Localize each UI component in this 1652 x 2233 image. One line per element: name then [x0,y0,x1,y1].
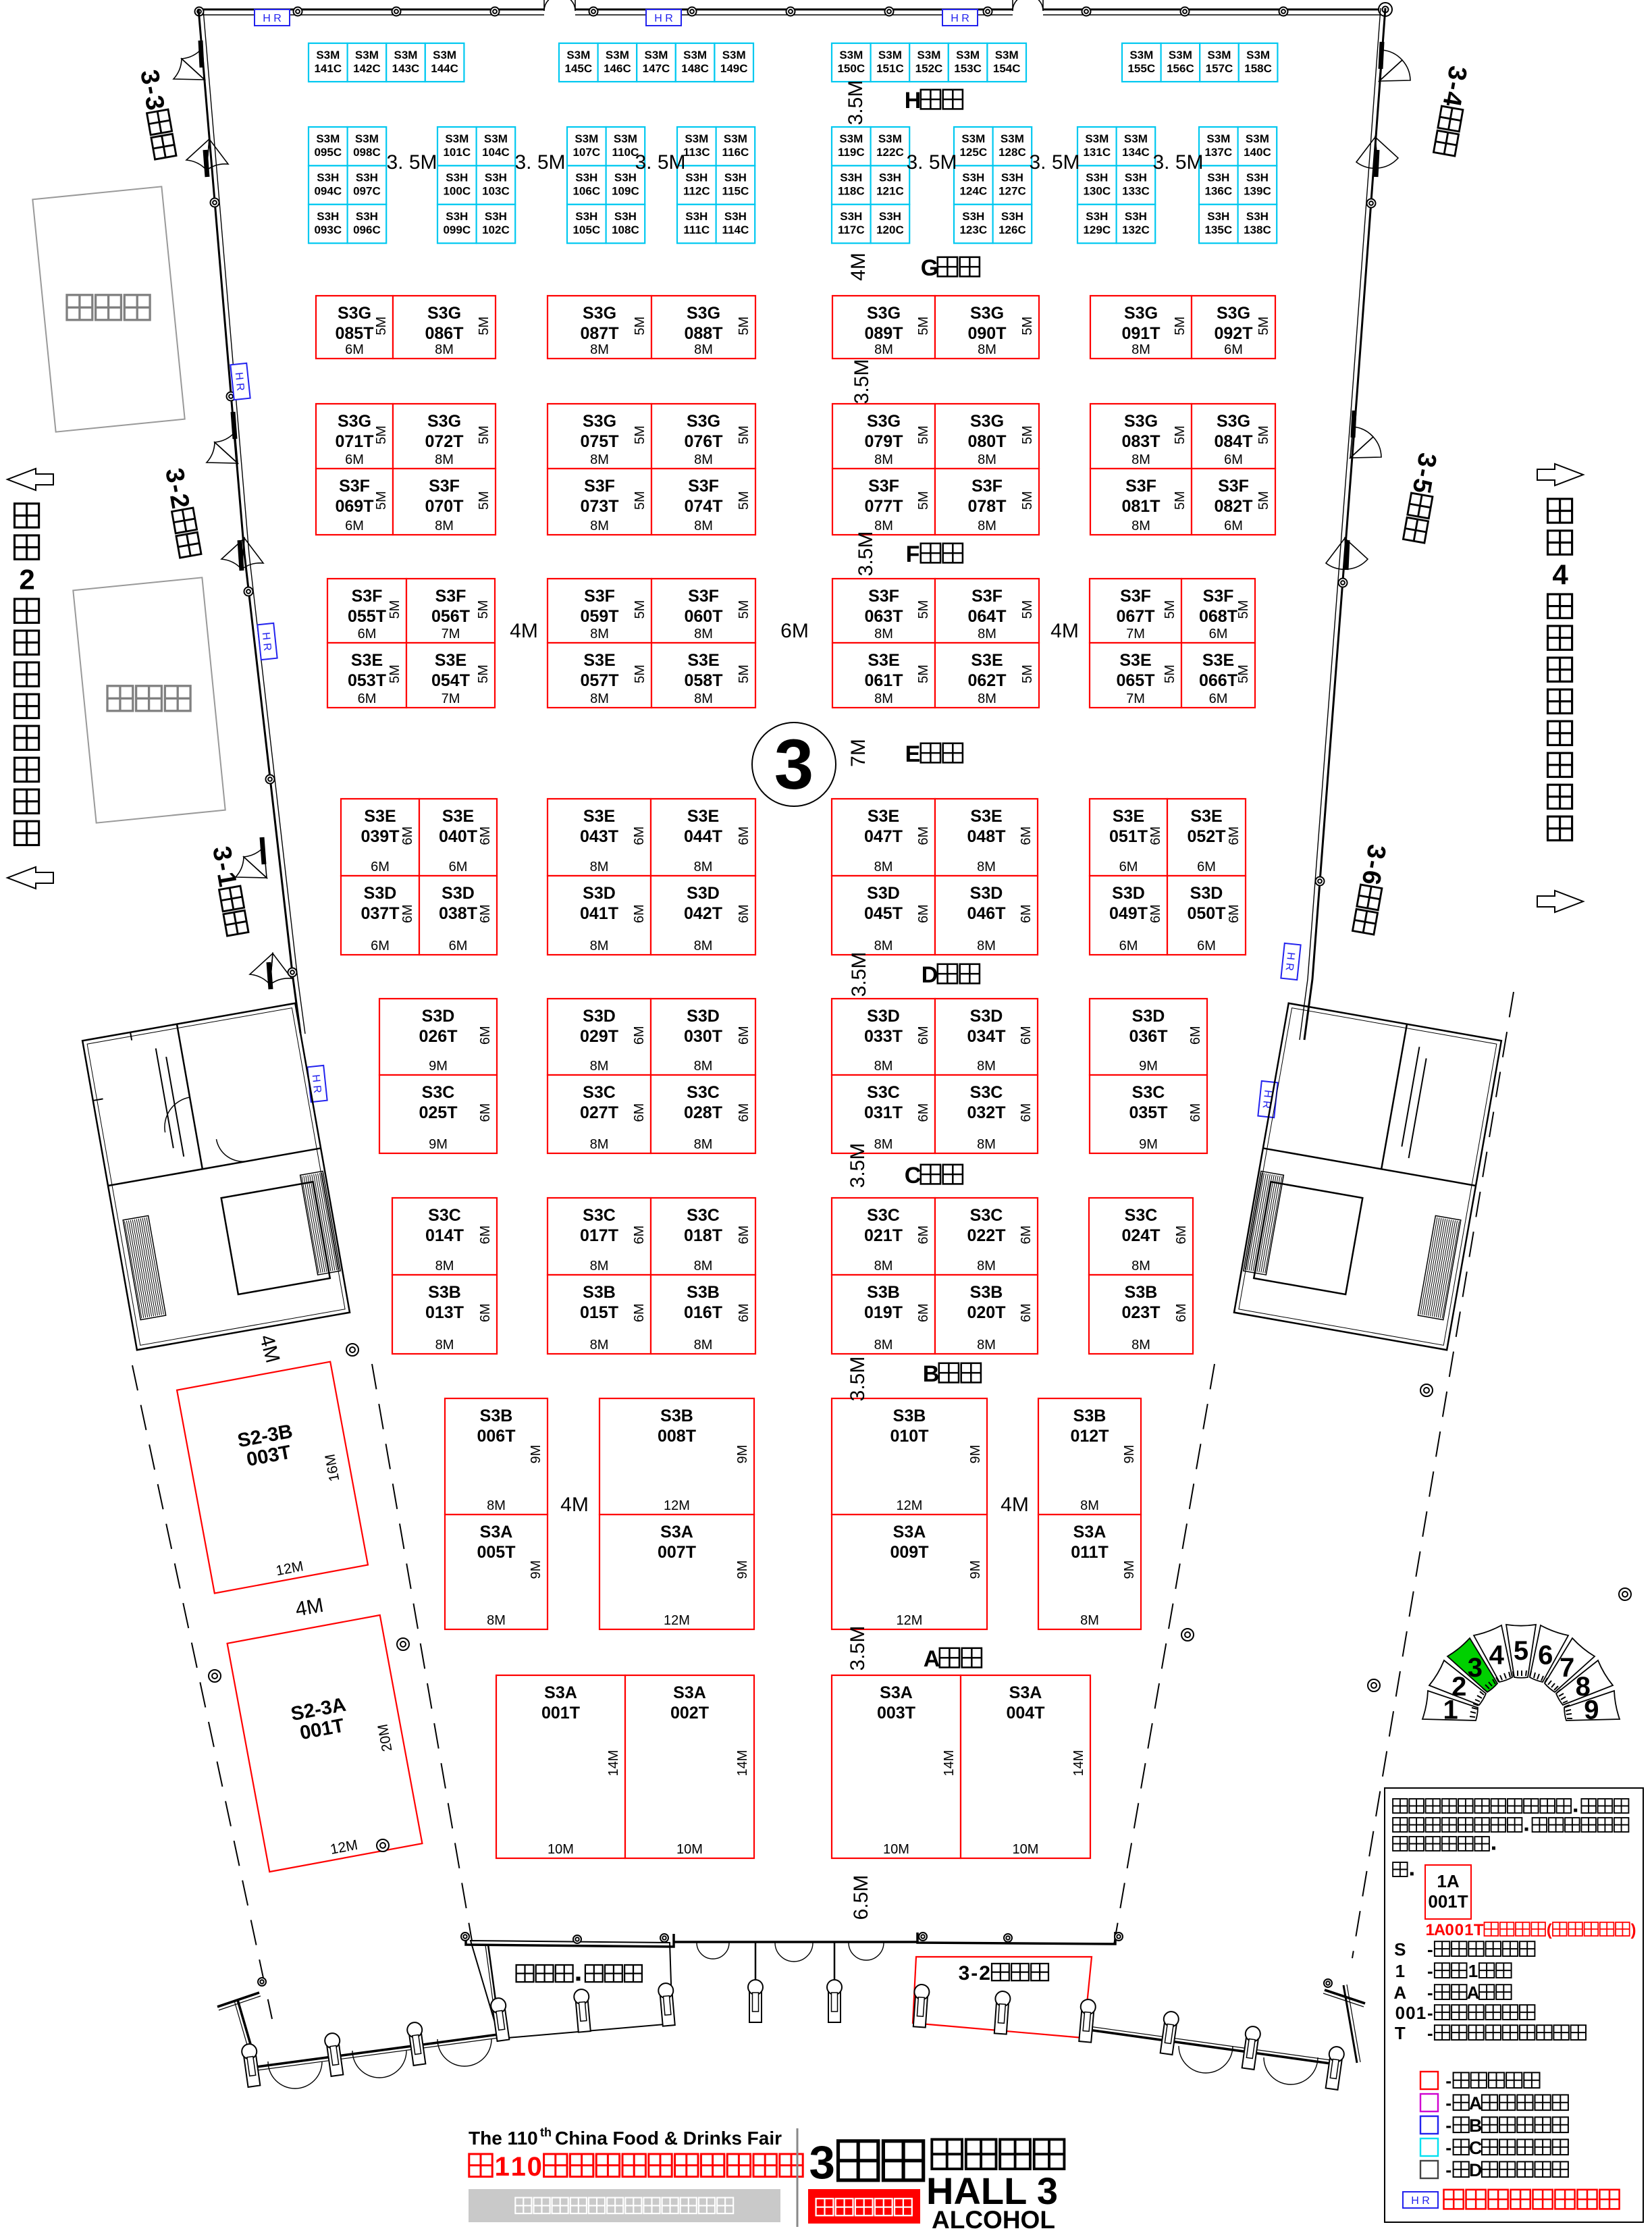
svg-text:6M: 6M [632,1026,647,1045]
svg-text:S3F: S3F [429,477,460,496]
svg-text:S3B: S3B [1125,1283,1158,1302]
svg-text:S3M: S3M [724,132,747,145]
svg-text:6M: 6M [449,939,468,953]
svg-text:6M: 6M [1119,939,1138,953]
svg-text:022T: 022T [967,1226,1006,1245]
svg-text:114C: 114C [722,224,749,236]
svg-text:065T: 065T [1117,671,1155,690]
svg-text:099C: 099C [443,224,471,236]
svg-text:S3F: S3F [1203,587,1234,606]
svg-text:157C: 157C [1206,62,1233,75]
svg-text:5M: 5M [1256,491,1271,510]
svg-text:5M: 5M [477,317,491,336]
svg-text:2: 2 [979,1962,990,1985]
svg-text:S3M: S3M [722,49,746,61]
svg-text:-: - [1427,2023,1433,2043]
svg-text:130C: 130C [1083,184,1111,197]
svg-text:S3B: S3B [970,1283,1003,1302]
svg-text:098C: 098C [353,146,381,159]
svg-text:045T: 045T [864,904,903,923]
svg-text:5M: 5M [1020,425,1035,444]
svg-text:6M: 6M [1197,860,1216,874]
svg-text:4: 4 [1489,1640,1505,1670]
svg-text:8M: 8M [874,939,893,953]
svg-text:8M: 8M [590,1338,609,1352]
svg-text:6M: 6M [1174,1303,1189,1322]
svg-text:S3F: S3F [868,477,899,496]
svg-text:H R: H R [951,13,969,24]
svg-text:8M: 8M [874,691,893,706]
svg-text:0: 0 [1406,2003,1415,2023]
svg-text:0: 0 [527,2152,542,2182]
svg-text:S3E: S3E [970,807,1002,826]
svg-text:089T: 089T [865,324,903,343]
svg-text:6M: 6M [1019,1103,1034,1122]
svg-text:S3G: S3G [338,412,371,431]
svg-text:S3H: S3H [1246,210,1269,223]
svg-text:5M: 5M [1163,664,1177,683]
svg-text:3: 3 [1468,1653,1483,1683]
svg-text:S3H: S3H [1125,210,1147,223]
svg-text:6M: 6M [358,627,377,641]
svg-text:H R: H R [1283,951,1297,971]
svg-text:S3G: S3G [687,412,720,431]
svg-text:078T: 078T [968,497,1007,516]
svg-text:008T: 008T [658,1427,696,1446]
svg-text:059T: 059T [581,607,619,626]
svg-text:-: - [1445,2160,1451,2180]
svg-text:S3M: S3M [878,49,902,61]
svg-text:091T: 091T [1122,324,1161,343]
svg-text:6M: 6M [916,1026,931,1045]
svg-text:S3G: S3G [687,304,720,323]
svg-text:A: A [1434,1921,1445,1939]
svg-text:8M: 8M [874,1137,893,1152]
svg-text:6M: 6M [737,1303,751,1322]
svg-text:S3H: S3H [1001,210,1023,223]
svg-text:6M: 6M [371,860,390,874]
svg-text:7M: 7M [442,691,460,706]
svg-text:S3B: S3B [583,1283,616,1302]
svg-text:5M: 5M [388,600,402,619]
svg-text:12M: 12M [664,1613,690,1628]
svg-text:8M: 8M [978,519,996,533]
svg-text:5M: 5M [374,317,389,336]
svg-text:H: H [905,88,922,113]
svg-text:The 110: The 110 [469,2128,538,2149]
svg-text:8M: 8M [590,342,609,357]
svg-text:036T: 036T [1129,1027,1168,1046]
svg-text:S3H: S3H [614,171,637,184]
svg-text:158C: 158C [1244,62,1272,75]
svg-text:5M: 5M [916,425,931,444]
svg-text:041T: 041T [580,904,618,923]
svg-text:S3G: S3G [867,412,901,431]
svg-text:111C: 111C [683,224,710,236]
svg-text:7M: 7M [847,739,870,767]
svg-text:S3D: S3D [442,884,475,903]
svg-text:087T: 087T [581,324,619,343]
svg-text:8M: 8M [874,1338,893,1352]
svg-text:068T: 068T [1199,607,1237,626]
svg-text:S3H: S3H [1207,171,1229,184]
svg-text:S3H: S3H [1001,171,1023,184]
svg-text:): ) [1631,1921,1636,1939]
svg-text:S3E: S3E [1119,651,1151,670]
svg-text:G: G [921,255,938,281]
svg-text:026T: 026T [419,1027,458,1046]
svg-text:S3M: S3M [575,132,598,145]
svg-text:011T: 011T [1071,1543,1109,1562]
svg-text:9: 9 [1584,1696,1599,1725]
svg-text:8M: 8M [694,860,713,874]
svg-text:12M: 12M [897,1498,923,1513]
svg-text:S3H: S3H [575,210,597,223]
svg-text:S3M: S3M [956,49,980,61]
svg-text:7M: 7M [1126,691,1145,706]
svg-text:6M: 6M [1119,860,1138,874]
svg-text:S3M: S3M [839,49,863,61]
svg-text:3.5M: 3.5M [855,531,877,577]
svg-text:8M: 8M [694,1338,713,1352]
svg-text:006T: 006T [477,1427,516,1446]
svg-text:6M: 6M [737,826,751,845]
svg-text:S3D: S3D [583,884,616,903]
svg-text:6M: 6M [478,904,493,923]
svg-text:6M: 6M [916,904,931,923]
svg-text:S3G: S3G [867,304,901,323]
svg-text:6M: 6M [345,519,364,533]
svg-text:112C: 112C [683,184,710,197]
svg-text:058T: 058T [685,671,723,690]
svg-text:129C: 129C [1083,224,1111,236]
svg-text:064T: 064T [968,607,1007,626]
svg-text:5M: 5M [1020,664,1035,683]
svg-text:S3M: S3M [445,132,469,145]
svg-text:148C: 148C [681,62,709,75]
svg-text:012T: 012T [1071,1427,1109,1446]
svg-text:S3D: S3D [364,884,397,903]
svg-text:040T: 040T [439,827,477,846]
svg-text:5M: 5M [1020,317,1035,336]
svg-text:8M: 8M [694,1059,713,1074]
svg-text:088T: 088T [685,324,723,343]
svg-text:062T: 062T [968,671,1007,690]
svg-text:016T: 016T [684,1303,722,1322]
svg-text:12M: 12M [664,1498,690,1513]
svg-text:8M: 8M [487,1498,506,1513]
svg-text:083T: 083T [1122,432,1161,451]
svg-text:144C: 144C [431,62,458,75]
svg-text:S3C: S3C [867,1083,900,1102]
svg-text:S3A: S3A [544,1683,577,1702]
svg-text:8M: 8M [694,627,713,641]
svg-text:5M: 5M [916,317,931,336]
svg-text:S3H: S3H [879,171,901,184]
svg-text:5M: 5M [1163,600,1177,619]
svg-text:S3F: S3F [971,477,1003,496]
svg-text:103C: 103C [482,184,510,197]
svg-text:0: 0 [1455,1921,1464,1939]
svg-text:-: - [1427,1982,1433,2003]
svg-text:S3E: S3E [435,651,467,670]
svg-text:S3H: S3H [840,210,862,223]
svg-text:S3H: S3H [1086,210,1108,223]
svg-text:S3M: S3M [1246,132,1269,145]
svg-text:S3F: S3F [1125,477,1156,496]
svg-text:019T: 019T [864,1303,903,1322]
svg-text:5M: 5M [1020,491,1035,510]
svg-text:5: 5 [1514,1636,1528,1666]
svg-text:034T: 034T [967,1027,1006,1046]
svg-text:6M: 6M [371,939,390,953]
svg-text:095C: 095C [314,146,342,159]
svg-text:S3M: S3M [566,49,590,61]
svg-text:044T: 044T [684,827,722,846]
svg-text:S3A: S3A [1009,1683,1042,1702]
svg-text:-: - [1427,1961,1433,1981]
svg-text:8M: 8M [435,1338,454,1352]
svg-text:China Food & Drinks Fair: China Food & Drinks Fair [555,2128,782,2149]
svg-text:S3D: S3D [583,1007,616,1026]
svg-text:1: 1 [1426,1921,1435,1939]
svg-text:S3H: S3H [485,210,507,223]
svg-text:015T: 015T [580,1303,618,1322]
svg-text:5M: 5M [476,664,491,683]
svg-text:096C: 096C [353,224,381,236]
svg-text:6M: 6M [1188,1103,1203,1122]
svg-text:8M: 8M [435,452,454,467]
svg-text:060T: 060T [685,607,723,626]
svg-text:8M: 8M [1131,519,1150,533]
svg-text:10M: 10M [883,1842,909,1857]
svg-text:061T: 061T [865,671,903,690]
svg-text:B: B [923,1361,940,1387]
svg-text:S3C: S3C [1125,1206,1158,1225]
svg-text:S3D: S3D [687,1007,720,1026]
svg-text:S3F: S3F [688,477,719,496]
svg-text:S3F: S3F [868,587,899,606]
svg-text:079T: 079T [865,432,903,451]
svg-text:7M: 7M [442,627,460,641]
svg-text:1: 1 [1416,2003,1426,2023]
svg-text:081T: 081T [1122,497,1161,516]
svg-text:8M: 8M [978,342,996,357]
svg-text:105C: 105C [572,224,600,236]
svg-text:5M: 5M [1236,664,1251,683]
svg-text:4: 4 [1552,559,1568,591]
svg-text:9M: 9M [735,1560,750,1579]
svg-text:S3E: S3E [364,807,396,826]
svg-text:-: - [1427,1939,1433,1960]
svg-text:-: - [1427,2003,1433,2023]
svg-text:S3H: S3H [485,171,507,184]
svg-text:8M: 8M [874,1259,893,1273]
svg-text:(: ( [1547,1921,1552,1939]
svg-text:6M: 6M [478,1103,493,1122]
svg-text:3.5M: 3.5M [851,359,873,404]
svg-text:8M: 8M [978,691,996,706]
svg-text:097C: 097C [353,184,381,197]
svg-text:5M: 5M [737,664,751,683]
svg-text:8M: 8M [694,691,713,706]
svg-text:9M: 9M [1122,1560,1137,1579]
svg-text:150C: 150C [837,62,865,75]
svg-text:S3E: S3E [1202,651,1234,670]
svg-text:8M: 8M [977,1059,996,1074]
svg-text:S3D: S3D [1190,884,1223,903]
svg-text:S3M: S3M [606,49,629,61]
svg-text:024T: 024T [1122,1226,1161,1245]
svg-text:151C: 151C [876,62,904,75]
svg-text:S3M: S3M [685,132,708,145]
svg-text:027T: 027T [580,1103,618,1122]
svg-text:100C: 100C [443,184,471,197]
svg-text:6M: 6M [1019,1026,1034,1045]
svg-text:S3E: S3E [687,807,719,826]
svg-text:5M: 5M [916,600,931,619]
svg-text:6M: 6M [358,691,377,706]
svg-text:S3M: S3M [995,49,1019,61]
svg-text:S3D: S3D [687,884,720,903]
svg-text:9M: 9M [968,1445,983,1464]
svg-text:035T: 035T [1129,1103,1168,1122]
svg-text:S3H: S3H [356,210,378,223]
svg-text:6M: 6M [478,826,493,845]
svg-text:6M: 6M [632,1303,647,1322]
svg-text:6M: 6M [632,1103,647,1122]
svg-text:10M: 10M [548,1842,574,1857]
svg-text:H R: H R [310,1074,323,1094]
svg-text:S3H: S3H [685,210,708,223]
svg-text:020T: 020T [967,1303,1006,1322]
svg-text:128C: 128C [998,146,1026,159]
svg-text:3. 5M: 3. 5M [386,151,437,174]
svg-text:S3C: S3C [422,1083,455,1102]
svg-text:071T: 071T [336,432,374,451]
svg-text:8M: 8M [1080,1613,1099,1628]
svg-text:124C: 124C [959,184,987,197]
svg-text:5M: 5M [1256,425,1271,444]
svg-text:6M: 6M [345,452,364,467]
svg-text:8M: 8M [694,519,713,533]
svg-text:5M: 5M [633,664,647,683]
svg-text:S3D: S3D [867,884,900,903]
svg-text:S3G: S3G [583,412,616,431]
svg-text:6M: 6M [400,904,415,923]
svg-text:8M: 8M [1131,1259,1150,1273]
svg-text:5M: 5M [737,425,751,444]
svg-text:143C: 143C [392,62,420,75]
svg-text:-: - [1445,2093,1451,2113]
svg-text:049T: 049T [1109,904,1148,923]
svg-text:8M: 8M [590,860,609,874]
svg-text:4M: 4M [1001,1494,1029,1516]
svg-text:033T: 033T [864,1027,903,1046]
svg-text:5M: 5M [374,425,389,444]
svg-text:145C: 145C [564,62,592,75]
svg-text:6M: 6M [737,1026,751,1045]
svg-text:9M: 9M [1139,1059,1158,1074]
svg-text:F: F [906,542,920,567]
svg-text:-: - [1445,2116,1451,2136]
svg-text:4M: 4M [510,620,538,642]
svg-text:S3H: S3H [317,210,339,223]
svg-text:S3H: S3H [879,210,901,223]
svg-text:6M: 6M [632,1226,647,1244]
svg-text:056T: 056T [431,607,470,626]
svg-text:S3G: S3G [427,412,461,431]
svg-text:8M: 8M [487,1613,506,1628]
svg-text:001T: 001T [1428,1891,1468,1912]
svg-text:8M: 8M [874,452,893,467]
svg-text:025T: 025T [419,1103,458,1122]
svg-text:039T: 039T [361,827,400,846]
svg-text:S3H: S3H [685,171,708,184]
svg-text:H R: H R [233,372,246,392]
svg-text:8M: 8M [1080,1498,1099,1513]
svg-text:134C: 134C [1122,146,1150,159]
svg-text:S3G: S3G [338,304,371,323]
svg-text:5M: 5M [737,600,751,619]
svg-text:052T: 052T [1188,827,1226,846]
svg-text:5M: 5M [633,600,647,619]
svg-text:080T: 080T [968,432,1007,451]
svg-text:0: 0 [1445,1921,1454,1939]
svg-text:S3M: S3M [355,49,379,61]
svg-text:5M: 5M [476,600,491,619]
svg-text:S3M: S3M [355,132,379,145]
svg-text:067T: 067T [1117,607,1155,626]
svg-text:S3B: S3B [428,1283,461,1302]
svg-text:8M: 8M [977,1259,996,1273]
svg-text:S3G: S3G [583,304,616,323]
svg-text:3. 5M: 3. 5M [906,151,957,174]
svg-text:5M: 5M [633,317,647,336]
svg-text:S3M: S3M [394,49,418,61]
svg-text:6M: 6M [1224,452,1243,467]
svg-text:8M: 8M [874,627,893,641]
svg-text:3.5M: 3.5M [847,1143,869,1188]
svg-text:S3E: S3E [687,651,719,670]
svg-text:109C: 109C [612,184,639,197]
svg-text:057T: 057T [581,671,619,690]
svg-text:S3H: S3H [317,171,339,184]
svg-text:S3F: S3F [339,477,370,496]
svg-text:085T: 085T [336,324,374,343]
svg-text:B: B [1469,2116,1483,2136]
svg-text:3.5M: 3.5M [847,1357,869,1402]
svg-text:S3A: S3A [660,1523,693,1542]
svg-text:S3E: S3E [351,651,383,670]
svg-text:5M: 5M [916,491,931,510]
svg-text:S3H: S3H [962,171,984,184]
svg-text:1: 1 [1395,1961,1405,1981]
svg-text:S3F: S3F [688,587,719,606]
svg-text:S3E: S3E [868,807,899,826]
svg-text:122C: 122C [876,146,904,159]
svg-text:8M: 8M [435,519,454,533]
svg-text:S3M: S3M [1129,49,1153,61]
svg-text:D: D [922,962,938,988]
svg-text:021T: 021T [864,1226,903,1245]
svg-text:S3M: S3M [1208,49,1231,61]
svg-text:A: A [924,1646,940,1672]
svg-text:131C: 131C [1083,146,1111,159]
svg-text:050T: 050T [1188,904,1226,923]
svg-text:S3H: S3H [1086,171,1108,184]
svg-text:156C: 156C [1167,62,1194,75]
